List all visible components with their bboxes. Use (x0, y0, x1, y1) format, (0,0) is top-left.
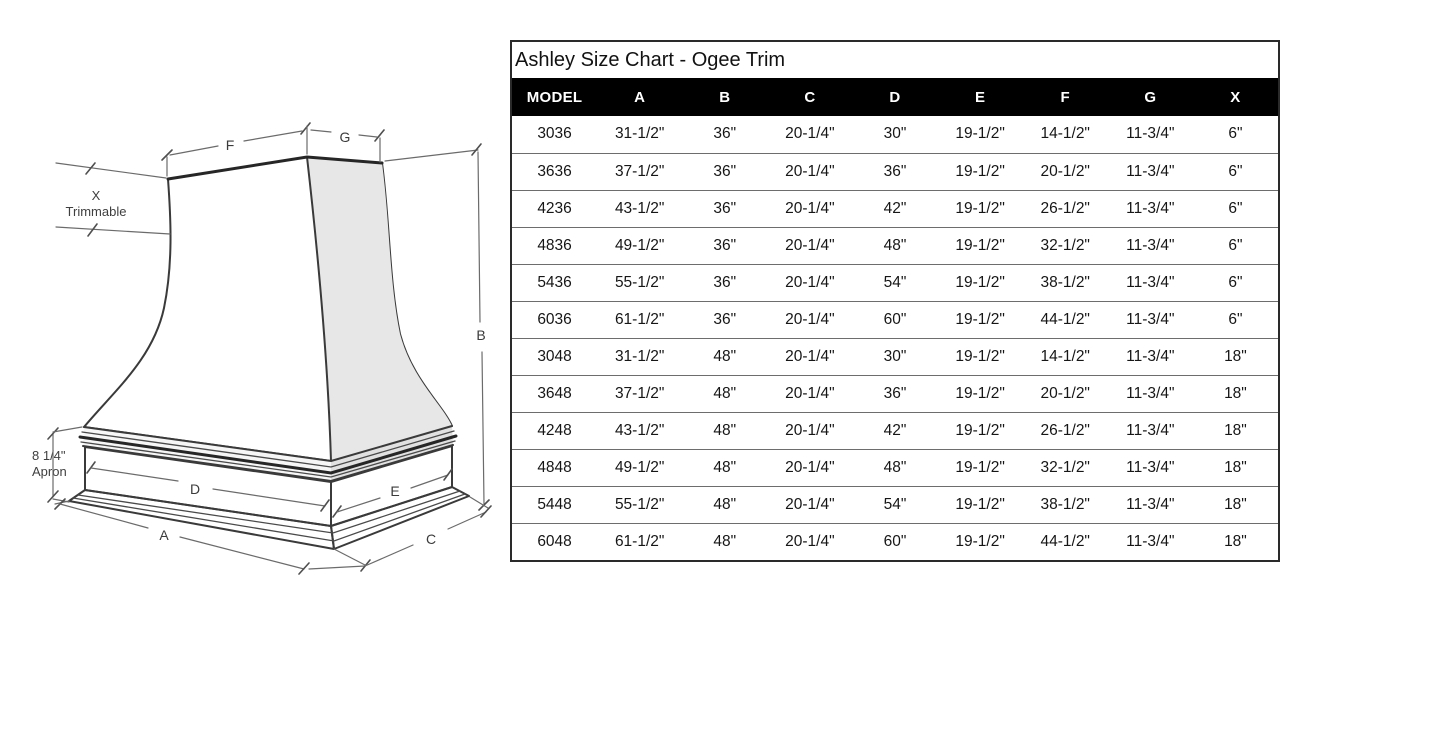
dim-label-a: A (159, 527, 169, 543)
model-cell: 4248 (512, 412, 597, 449)
dim-label-g: G (340, 129, 351, 145)
d-line-1 (91, 468, 178, 481)
x-leader-top (56, 163, 166, 178)
x-leader-bottom (56, 227, 170, 234)
model-cell: 4236 (512, 190, 597, 227)
dimension-cell: 42" (852, 190, 937, 227)
dimension-cell: 44-1/2" (1023, 301, 1108, 338)
dimension-cell: 20-1/4" (767, 190, 852, 227)
model-cell: 5448 (512, 486, 597, 523)
dimension-cell: 30" (852, 116, 937, 153)
dimension-cell: 6" (1193, 116, 1278, 153)
size-chart-title: Ashley Size Chart - Ogee Trim (512, 42, 1278, 78)
size-chart-card: Ashley Size Chart - Ogee Trim MODEL A B … (510, 40, 1280, 562)
size-table-body: 303631-1/2"36"20-1/4"30"19-1/2"14-1/2"11… (512, 116, 1278, 560)
model-cell: 3036 (512, 116, 597, 153)
dimension-cell: 36" (682, 190, 767, 227)
dimension-cell: 11-3/4" (1108, 264, 1193, 301)
dimension-cell: 31-1/2" (597, 338, 682, 375)
table-row: 544855-1/2"48"20-1/4"54"19-1/2"38-1/2"11… (512, 486, 1278, 523)
dimension-cell: 43-1/2" (597, 412, 682, 449)
a-c-connector (309, 566, 365, 569)
col-header-x: X (1193, 78, 1278, 116)
e-tick-right (444, 469, 452, 480)
dimension-cell: 11-3/4" (1108, 449, 1193, 486)
dimension-cell: 61-1/2" (597, 523, 682, 560)
dimension-cell: 19-1/2" (938, 116, 1023, 153)
dimension-cell: 18" (1193, 412, 1278, 449)
dimension-cell: 19-1/2" (938, 449, 1023, 486)
dimension-cell: 36" (682, 264, 767, 301)
dimension-cell: 20-1/4" (767, 116, 852, 153)
dimension-cell: 11-3/4" (1108, 412, 1193, 449)
dimension-cell: 20-1/4" (767, 449, 852, 486)
dimension-cell: 19-1/2" (938, 264, 1023, 301)
hood-sketch-svg: F G B X Trimmable 8 (28, 112, 500, 592)
dimension-cell: 36" (682, 301, 767, 338)
dimension-cell: 38-1/2" (1023, 264, 1108, 301)
col-header-a: A (597, 78, 682, 116)
dimension-cell: 6" (1193, 264, 1278, 301)
table-row: 603661-1/2"36"20-1/4"60"19-1/2"44-1/2"11… (512, 301, 1278, 338)
table-row: 304831-1/2"48"20-1/4"30"19-1/2"14-1/2"11… (512, 338, 1278, 375)
dimension-cell: 20-1/4" (767, 264, 852, 301)
dimension-cell: 19-1/2" (938, 375, 1023, 412)
header-row: MODEL A B C D E F G X (512, 78, 1278, 116)
dim-label-c: C (426, 531, 436, 547)
dimension-cell: 48" (682, 375, 767, 412)
dimension-cell: 36" (852, 375, 937, 412)
dimension-cell: 20-1/4" (767, 338, 852, 375)
table-row: 483649-1/2"36"20-1/4"48"19-1/2"32-1/2"11… (512, 227, 1278, 264)
dimension-cell: 32-1/2" (1023, 449, 1108, 486)
dimension-cell: 20-1/2" (1023, 375, 1108, 412)
dimension-cell: 48" (682, 412, 767, 449)
dimension-cell: 20-1/4" (767, 523, 852, 560)
size-table-header: MODEL A B C D E F G X (512, 78, 1278, 116)
model-cell: 4848 (512, 449, 597, 486)
table-row: 424843-1/2"48"20-1/4"42"19-1/2"26-1/2"11… (512, 412, 1278, 449)
table-row: 303631-1/2"36"20-1/4"30"19-1/2"14-1/2"11… (512, 116, 1278, 153)
table-row: 363637-1/2"36"20-1/4"36"19-1/2"20-1/2"11… (512, 153, 1278, 190)
dimension-cell: 36" (682, 227, 767, 264)
model-cell: 6036 (512, 301, 597, 338)
model-cell: 3648 (512, 375, 597, 412)
dimension-cell: 38-1/2" (1023, 486, 1108, 523)
dimension-cell: 11-3/4" (1108, 338, 1193, 375)
table-row: 543655-1/2"36"20-1/4"54"19-1/2"38-1/2"11… (512, 264, 1278, 301)
dimension-cell: 18" (1193, 338, 1278, 375)
dimension-cell: 48" (682, 486, 767, 523)
b-ext-bottom (470, 497, 488, 508)
dimension-cell: 6" (1193, 190, 1278, 227)
apron-word-label: Apron (32, 464, 67, 479)
dimension-cell: 42" (852, 412, 937, 449)
dimension-cell: 36" (852, 153, 937, 190)
col-header-e: E (938, 78, 1023, 116)
dim-label-b: B (476, 327, 485, 343)
dimension-cell: 19-1/2" (938, 190, 1023, 227)
dim-label-d: D (190, 481, 200, 497)
c-line-2 (448, 512, 486, 529)
apron-size-label: 8 1/4" (32, 448, 66, 463)
dimension-cell: 37-1/2" (597, 375, 682, 412)
dimension-cell: 19-1/2" (938, 227, 1023, 264)
dimension-cell: 37-1/2" (597, 153, 682, 190)
c-tick-right (481, 506, 491, 517)
dimension-cell: 20-1/4" (767, 412, 852, 449)
dimension-cell: 55-1/2" (597, 264, 682, 301)
dimension-cell: 20-1/4" (767, 301, 852, 338)
b-line-1 (478, 152, 480, 322)
dimension-cell: 20-1/2" (1023, 153, 1108, 190)
dimension-cell: 36" (682, 153, 767, 190)
dimension-cell: 6" (1193, 227, 1278, 264)
table-row: 484849-1/2"48"20-1/4"48"19-1/2"32-1/2"11… (512, 449, 1278, 486)
dimension-cell: 48" (682, 449, 767, 486)
hood-diagram: F G B X Trimmable 8 (28, 112, 500, 592)
dimension-cell: 11-3/4" (1108, 116, 1193, 153)
dimension-cell: 43-1/2" (597, 190, 682, 227)
dimension-cell: 20-1/4" (767, 227, 852, 264)
model-cell: 3048 (512, 338, 597, 375)
dimension-cell: 20-1/4" (767, 153, 852, 190)
b-ext-top (385, 150, 478, 161)
dimension-cell: 19-1/2" (938, 412, 1023, 449)
dimension-cell: 49-1/2" (597, 227, 682, 264)
dimension-cell: 48" (682, 523, 767, 560)
dimension-cell: 26-1/2" (1023, 412, 1108, 449)
size-chart-table: MODEL A B C D E F G X 303631-1/2"36"20-1… (512, 78, 1278, 560)
col-header-d: D (852, 78, 937, 116)
dim-label-f: F (226, 137, 235, 153)
dimension-cell: 54" (852, 264, 937, 301)
dimension-cell: 11-3/4" (1108, 486, 1193, 523)
col-header-b: B (682, 78, 767, 116)
e-line-2 (411, 475, 448, 488)
dimension-cell: 20-1/4" (767, 486, 852, 523)
dimension-cell: 32-1/2" (1023, 227, 1108, 264)
f-line-1 (170, 146, 218, 155)
x-trimmable-title: X (92, 188, 101, 203)
dimension-cell: 18" (1193, 486, 1278, 523)
dimension-cell: 11-3/4" (1108, 375, 1193, 412)
model-cell: 5436 (512, 264, 597, 301)
table-row: 604861-1/2"48"20-1/4"60"19-1/2"44-1/2"11… (512, 523, 1278, 560)
col-header-g: G (1108, 78, 1193, 116)
dimension-cell: 49-1/2" (597, 449, 682, 486)
dimension-cell: 19-1/2" (938, 153, 1023, 190)
dimension-cell: 55-1/2" (597, 486, 682, 523)
c-ext-left (334, 549, 365, 565)
dimension-cell: 60" (852, 301, 937, 338)
a-line-2 (180, 537, 304, 569)
model-cell: 6048 (512, 523, 597, 560)
dimension-cell: 19-1/2" (938, 338, 1023, 375)
dimension-cell: 19-1/2" (938, 486, 1023, 523)
b-tick-top (472, 144, 481, 155)
b-line-2 (482, 352, 484, 504)
dim-label-e: E (390, 483, 399, 499)
col-header-f: F (1023, 78, 1108, 116)
dimension-cell: 18" (1193, 523, 1278, 560)
dimension-cell: 11-3/4" (1108, 227, 1193, 264)
g-line-1 (311, 130, 331, 132)
dimension-cell: 31-1/2" (597, 116, 682, 153)
dimension-cell: 60" (852, 523, 937, 560)
dimension-cell: 30" (852, 338, 937, 375)
page: F G B X Trimmable 8 (0, 0, 1445, 745)
model-cell: 3636 (512, 153, 597, 190)
c-line-1 (365, 545, 413, 566)
dimension-cell: 20-1/4" (767, 375, 852, 412)
e-line-1 (337, 498, 380, 512)
dimension-cell: 48" (852, 227, 937, 264)
dimension-cell: 19-1/2" (938, 301, 1023, 338)
dimension-cell: 19-1/2" (938, 523, 1023, 560)
model-cell: 4836 (512, 227, 597, 264)
d-line-2 (213, 489, 325, 506)
col-header-c: C (767, 78, 852, 116)
dimension-cell: 6" (1193, 301, 1278, 338)
dimension-cell: 44-1/2" (1023, 523, 1108, 560)
dimension-cell: 11-3/4" (1108, 190, 1193, 227)
dimension-cell: 48" (852, 449, 937, 486)
dimension-cell: 11-3/4" (1108, 301, 1193, 338)
dimension-cell: 61-1/2" (597, 301, 682, 338)
dimension-cell: 11-3/4" (1108, 523, 1193, 560)
dimension-cell: 26-1/2" (1023, 190, 1108, 227)
col-header-model: MODEL (512, 78, 597, 116)
f-line-2 (244, 131, 302, 141)
dimension-cell: 18" (1193, 375, 1278, 412)
dimension-cell: 14-1/2" (1023, 116, 1108, 153)
x-trimmable-subtitle: Trimmable (66, 204, 127, 219)
dimension-cell: 54" (852, 486, 937, 523)
f-tick-right (301, 123, 310, 134)
g-line-2 (359, 135, 377, 137)
dimension-cell: 36" (682, 116, 767, 153)
dimension-cell: 48" (682, 338, 767, 375)
dimension-cell: 6" (1193, 153, 1278, 190)
table-row: 364837-1/2"48"20-1/4"36"19-1/2"20-1/2"11… (512, 375, 1278, 412)
dimension-cell: 18" (1193, 449, 1278, 486)
table-row: 423643-1/2"36"20-1/4"42"19-1/2"26-1/2"11… (512, 190, 1278, 227)
dimension-cell: 14-1/2" (1023, 338, 1108, 375)
dimension-cell: 11-3/4" (1108, 153, 1193, 190)
